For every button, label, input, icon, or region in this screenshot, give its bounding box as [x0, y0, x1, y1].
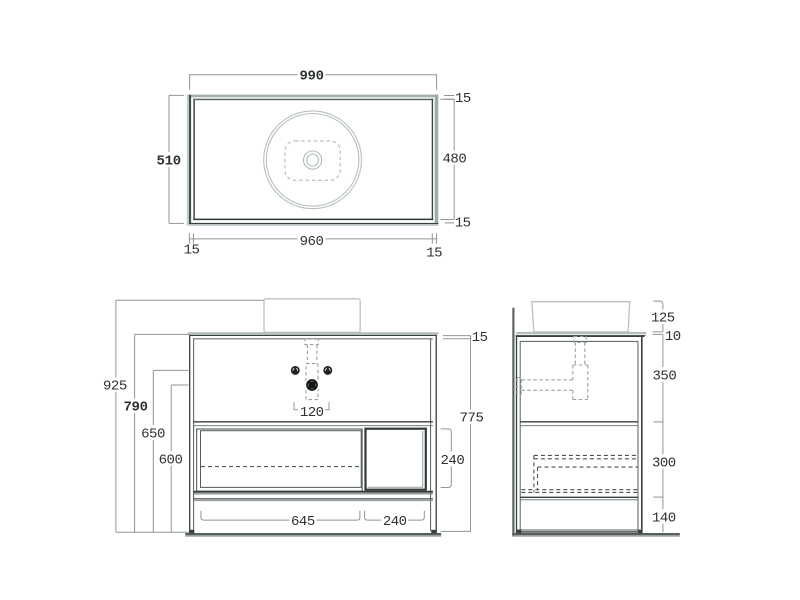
svg-text:510: 510 [157, 153, 181, 169]
svg-text:645: 645 [291, 514, 315, 530]
svg-text:240: 240 [383, 514, 407, 530]
svg-text:480: 480 [443, 152, 467, 168]
svg-text:140: 140 [652, 510, 676, 526]
svg-text:350: 350 [653, 368, 677, 384]
svg-text:240: 240 [441, 453, 465, 469]
svg-text:10: 10 [665, 329, 681, 345]
svg-text:15: 15 [455, 215, 471, 231]
svg-text:15: 15 [426, 246, 442, 262]
svg-text:790: 790 [123, 400, 147, 416]
svg-text:650: 650 [141, 427, 165, 443]
svg-text:925: 925 [103, 379, 127, 395]
svg-text:125: 125 [651, 311, 675, 327]
svg-text:300: 300 [652, 455, 676, 471]
svg-text:120: 120 [300, 405, 324, 421]
svg-text:15: 15 [184, 242, 200, 258]
svg-text:960: 960 [300, 234, 324, 250]
svg-text:775: 775 [460, 411, 484, 427]
svg-text:15: 15 [455, 91, 471, 107]
svg-text:15: 15 [472, 330, 488, 346]
svg-text:990: 990 [299, 69, 323, 85]
svg-text:600: 600 [159, 452, 183, 468]
